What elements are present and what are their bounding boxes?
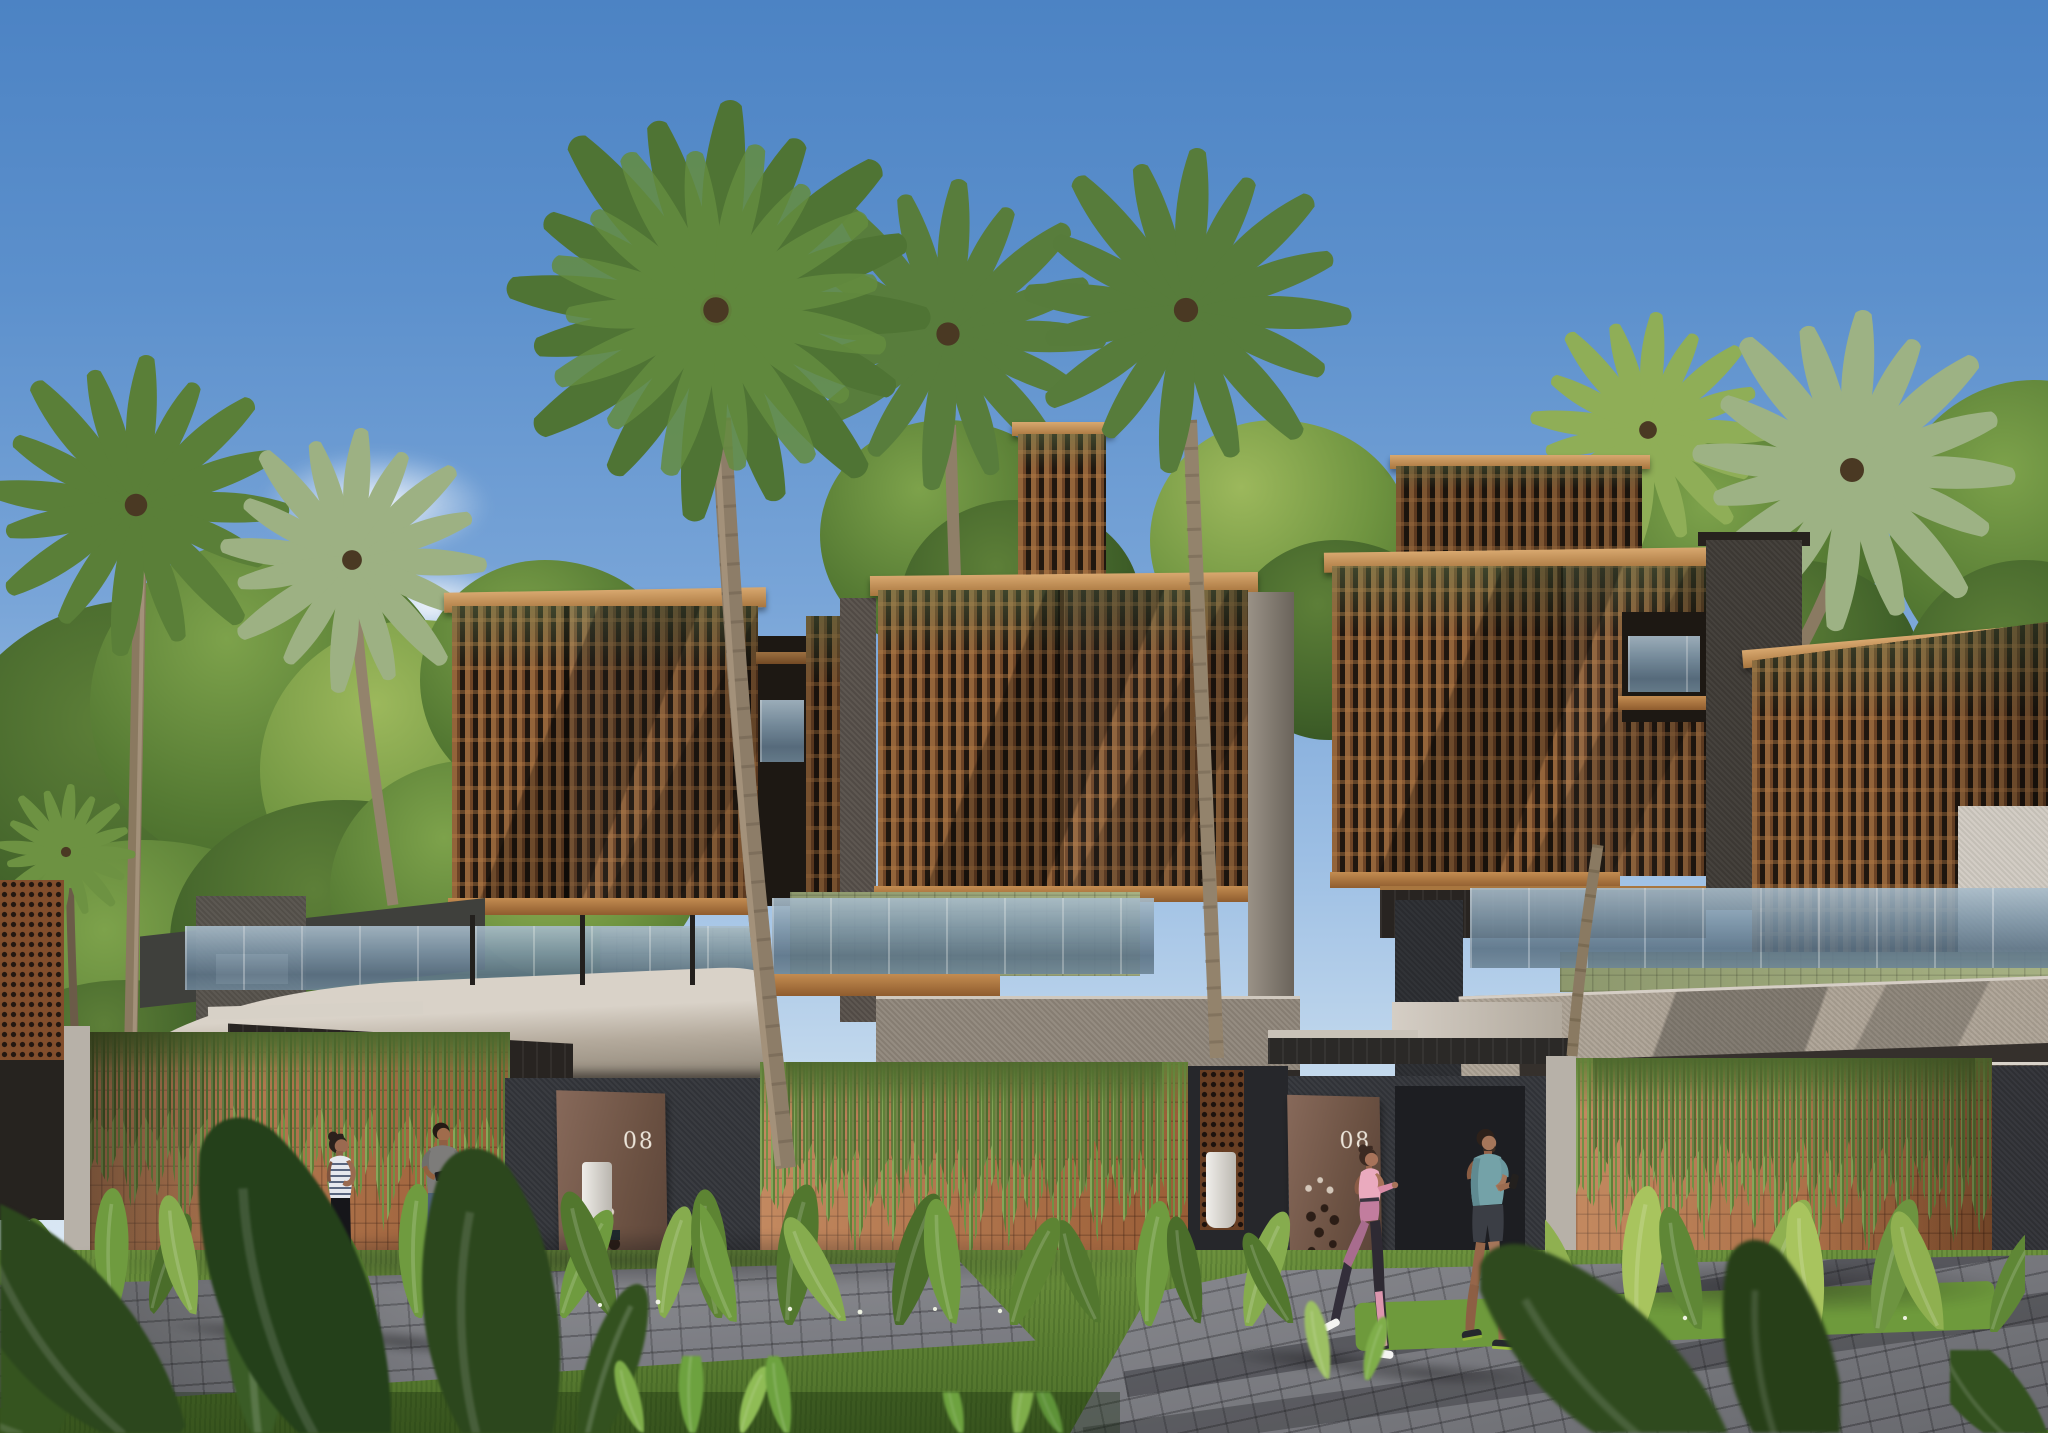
corner-leaf: [1950, 1350, 2048, 1433]
hand: [1392, 1182, 1398, 1188]
rear-thigh: [1343, 1220, 1369, 1267]
hips: [1360, 1201, 1380, 1222]
grass-sprouts: [920, 1392, 1090, 1433]
architectural-rendering-scene: 08 08: [0, 0, 2048, 1433]
head: [1358, 1144, 1378, 1166]
foreground-leaves-right: [1480, 1220, 1840, 1433]
bottle: [1508, 1173, 1519, 1189]
rear-calf: [1466, 1284, 1480, 1331]
palm-trunk-lower: [1572, 845, 1598, 1056]
grass-sprouts: [1290, 1300, 1400, 1380]
plant-cluster: [1060, 1150, 1320, 1326]
grass-sprouts: [600, 1356, 820, 1433]
foreground-leaves-left: [0, 1110, 660, 1433]
plant-cluster: [700, 1135, 1060, 1325]
palm-trunk: [1190, 420, 1217, 1058]
palm-crown: [1022, 146, 1352, 475]
head: [1477, 1129, 1497, 1154]
